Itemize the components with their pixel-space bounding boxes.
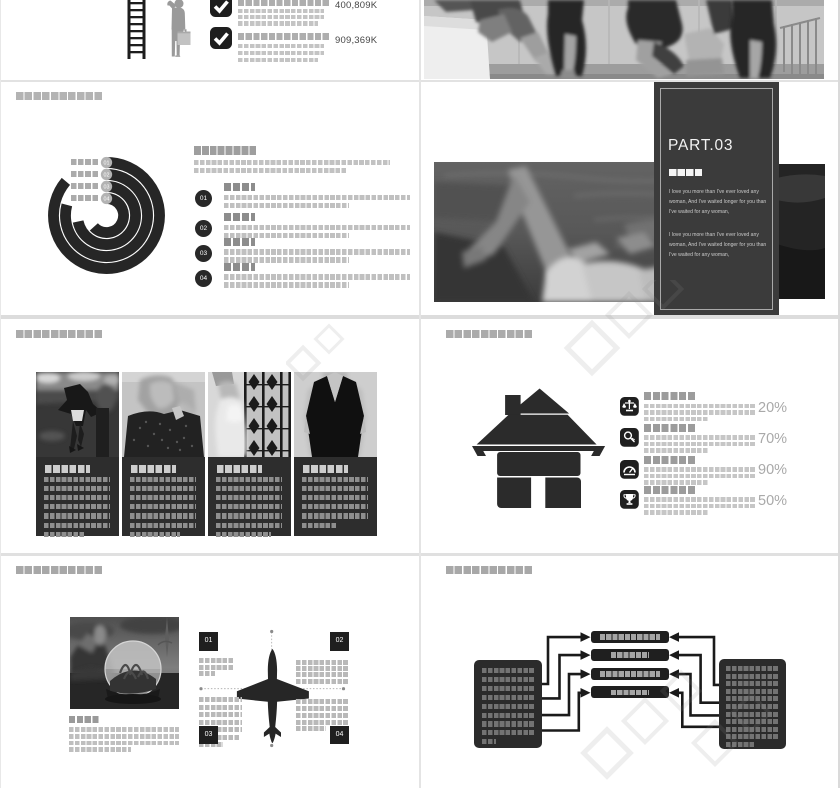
svg-text:03: 03: [104, 184, 110, 190]
svg-text:04: 04: [104, 196, 110, 202]
svg-text:01: 01: [104, 160, 110, 166]
svg-text:02: 02: [104, 172, 110, 178]
